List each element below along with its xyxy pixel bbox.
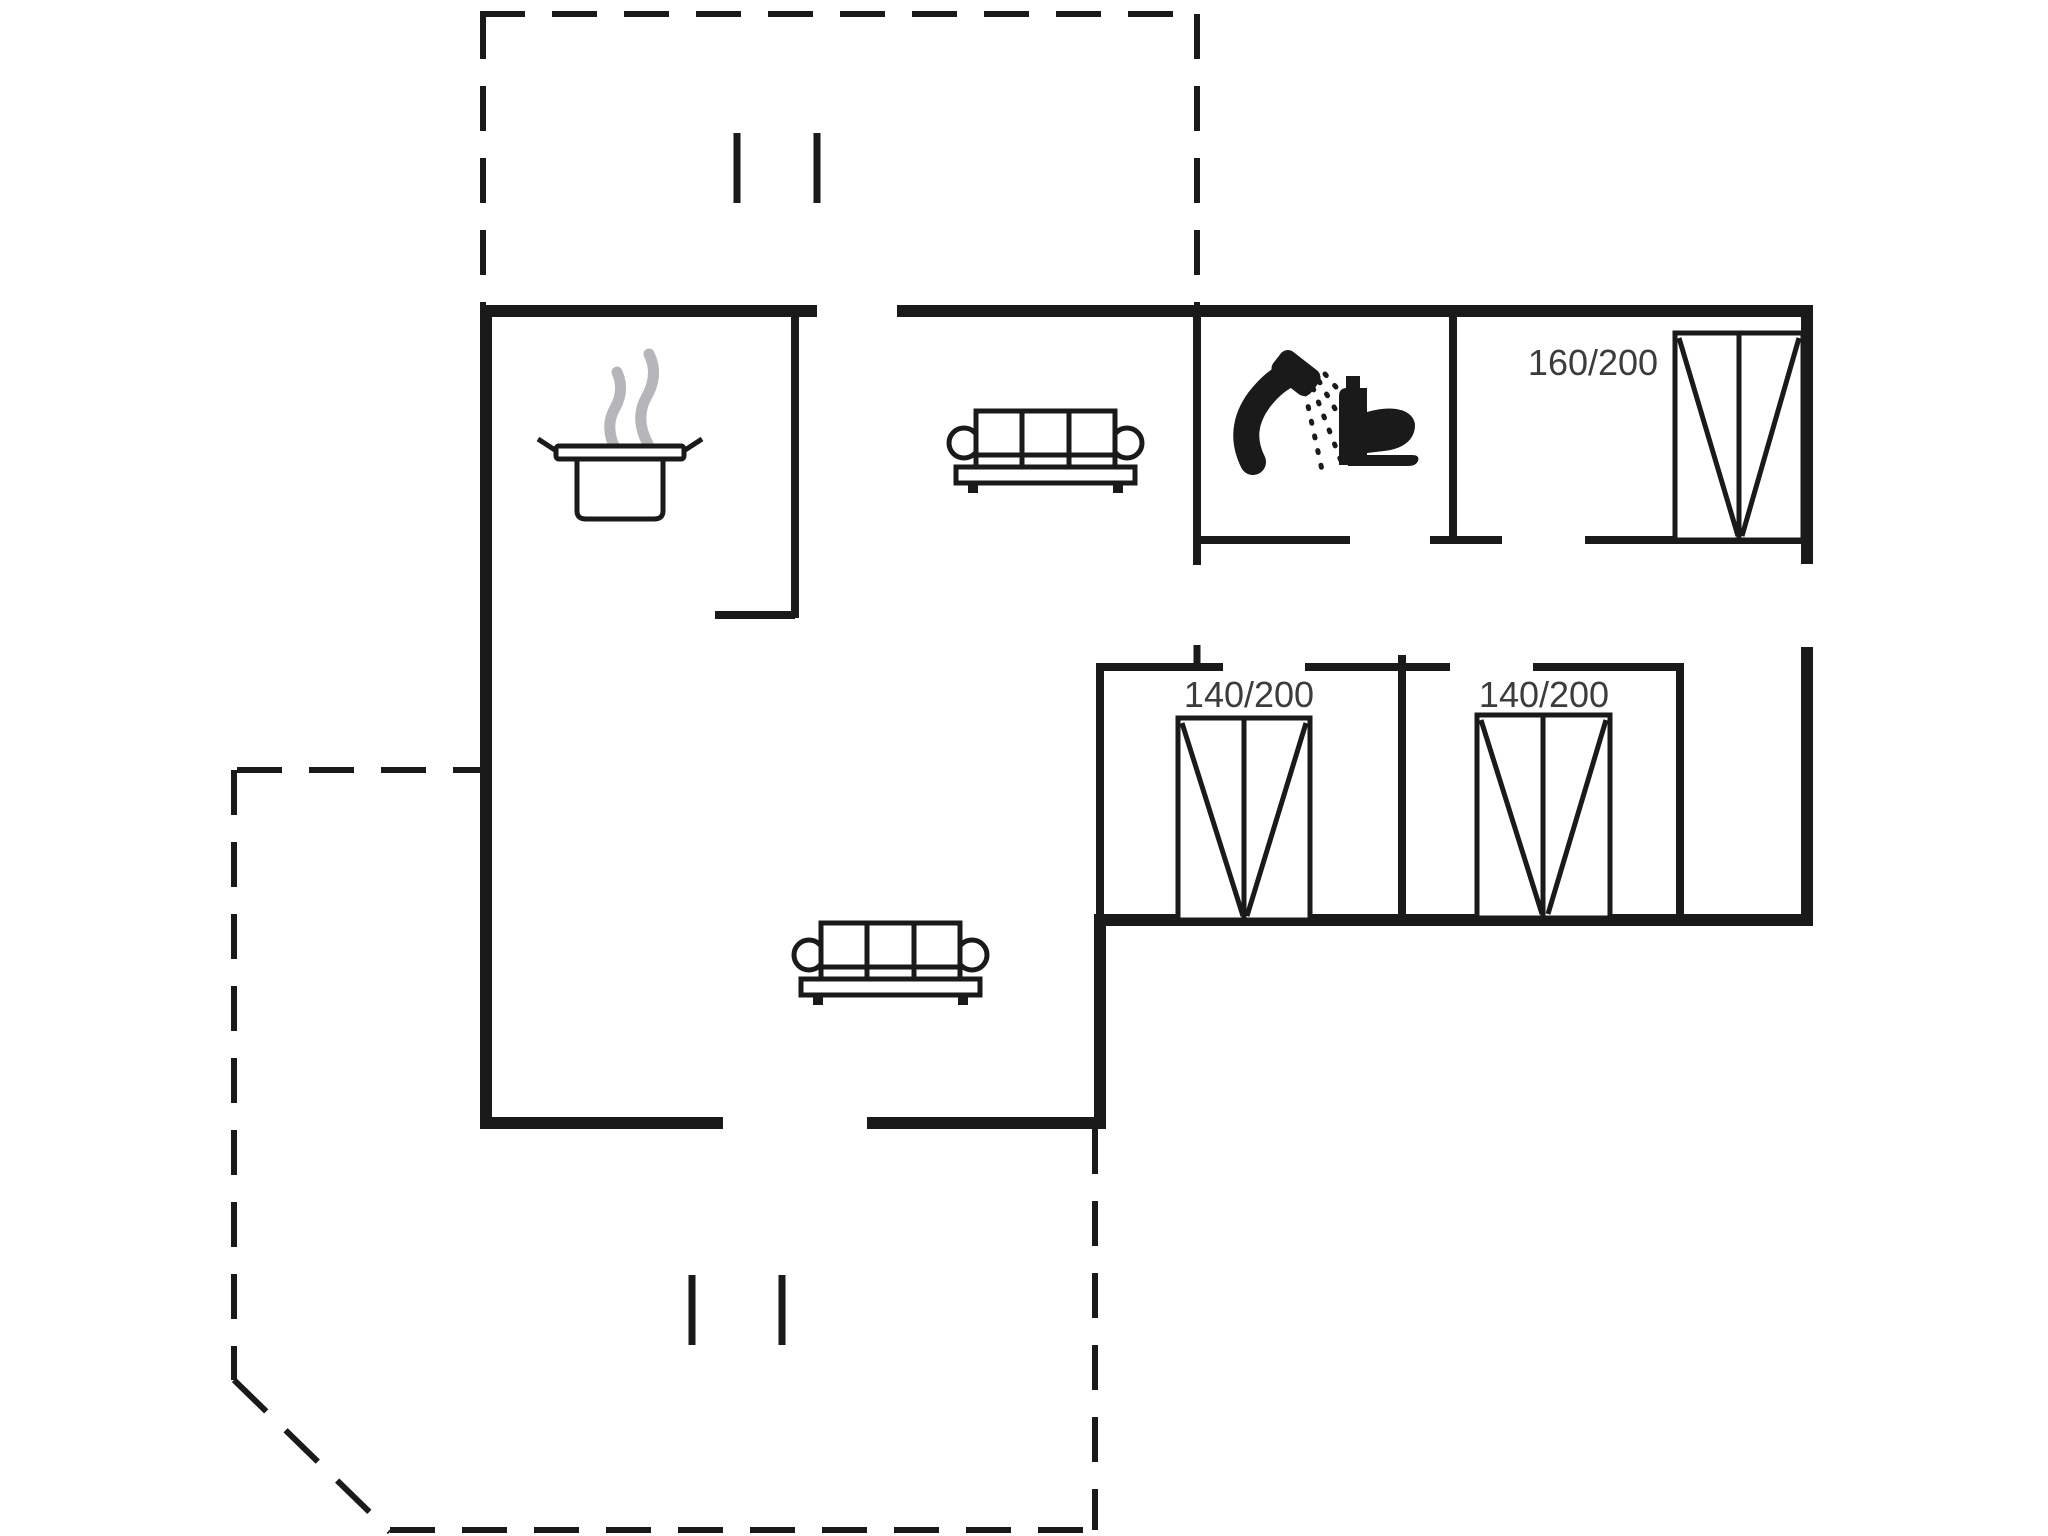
- outer-walls: [480, 305, 1813, 1129]
- toilet-base: [1348, 455, 1418, 466]
- toilet-icon: [1339, 376, 1418, 466]
- toilet-tank-and-bowl: [1339, 388, 1415, 465]
- steam-swirl-right: [641, 354, 654, 444]
- terrace-top-outline: [480, 14, 1197, 305]
- floor-plan-canvas: 160/200 140/200 140/200: [0, 0, 2048, 1536]
- bed-size-label-160: 160/200: [1528, 342, 1658, 383]
- toilet-button: [1346, 376, 1360, 389]
- pot-body: [577, 459, 663, 519]
- double-bed-icon-160: [1675, 333, 1803, 540]
- floor-plan-page: 160/200 140/200 140/200: [0, 0, 2048, 1536]
- sofa-icon: [949, 411, 1142, 493]
- terrace-bottom-outline: [234, 770, 1095, 1532]
- steam-swirl-left: [610, 372, 621, 450]
- double-bed-icon-140-right: [1477, 715, 1610, 918]
- bed-size-label-140-left: 140/200: [1184, 674, 1314, 715]
- double-bed-icon-140-left: [1178, 718, 1310, 920]
- sofa-icon: [794, 923, 987, 1005]
- cooking-pot-icon: [538, 354, 702, 519]
- bed-size-label-140-right: 140/200: [1479, 674, 1609, 715]
